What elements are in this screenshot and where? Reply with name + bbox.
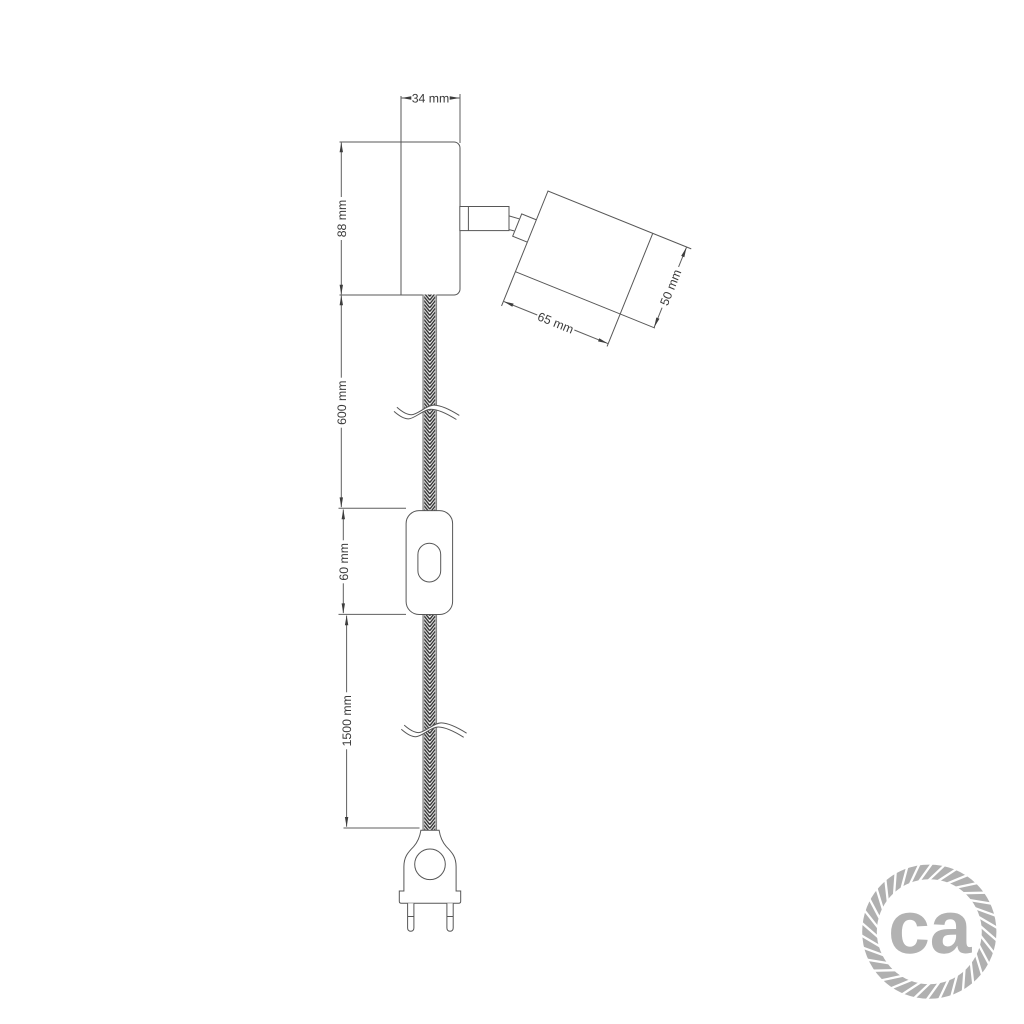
svg-text:60 mm: 60 mm xyxy=(337,543,351,581)
svg-text:600 mm: 600 mm xyxy=(335,380,349,424)
svg-text:34 mm: 34 mm xyxy=(412,91,450,105)
svg-text:1500 mm: 1500 mm xyxy=(340,695,354,746)
svg-text:ca: ca xyxy=(888,885,973,969)
svg-text:88 mm: 88 mm xyxy=(335,200,349,238)
